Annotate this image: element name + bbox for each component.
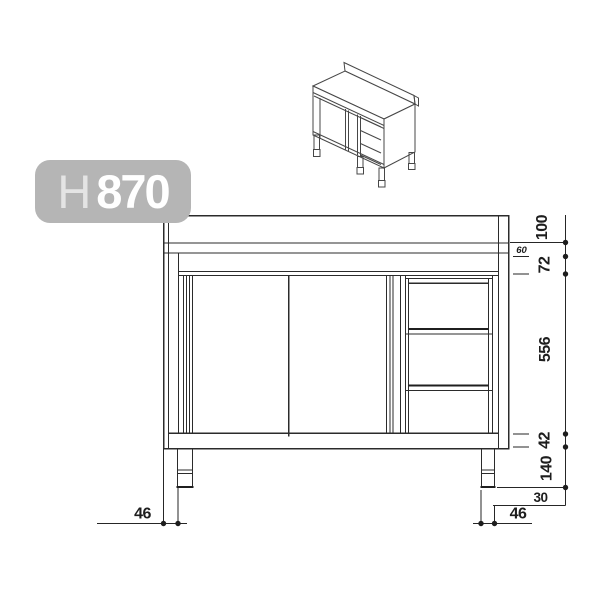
dim-label-140: 140	[539, 455, 556, 481]
dim-label-72: 72	[537, 256, 554, 273]
dot-4	[563, 431, 568, 436]
technical-drawing-page: 100 60 72 556 42 140 30 46 46 H870	[0, 0, 600, 600]
isometric-view	[313, 63, 419, 188]
dot-10	[175, 521, 180, 526]
iso-foot-front-left	[314, 150, 321, 157]
iso-foot-mid	[357, 168, 364, 175]
dim-label-100: 100	[534, 214, 551, 240]
cabinet-outline	[164, 216, 509, 449]
dot-8	[492, 521, 497, 526]
dim-label-42: 42	[537, 432, 554, 449]
iso-foot-front-right	[379, 181, 386, 188]
iso-leg-front-right	[379, 168, 385, 181]
dim-label-46-right: 46	[510, 506, 527, 523]
badge-prefix: H	[57, 168, 89, 215]
dot-2	[563, 254, 568, 259]
dot-5	[563, 444, 568, 449]
height-badge: H870	[35, 160, 191, 223]
dimension-lines	[97, 215, 566, 524]
front-view	[164, 216, 509, 488]
iso-foot-back-right	[409, 164, 416, 170]
dimension-dots	[161, 240, 568, 526]
drawing-canvas: 100 60 72 556 42 140 30 46 46	[0, 0, 600, 600]
dot-9	[161, 521, 166, 526]
dot-7	[478, 521, 483, 526]
dim-label-556: 556	[537, 336, 554, 362]
dot-3	[563, 271, 568, 276]
dim-label-60: 60	[516, 245, 527, 256]
dot-6	[563, 485, 568, 490]
dot-1	[563, 240, 568, 245]
badge-value: 870	[96, 168, 168, 215]
dim-label-30: 30	[533, 490, 547, 505]
dim-label-46-left: 46	[134, 506, 151, 523]
